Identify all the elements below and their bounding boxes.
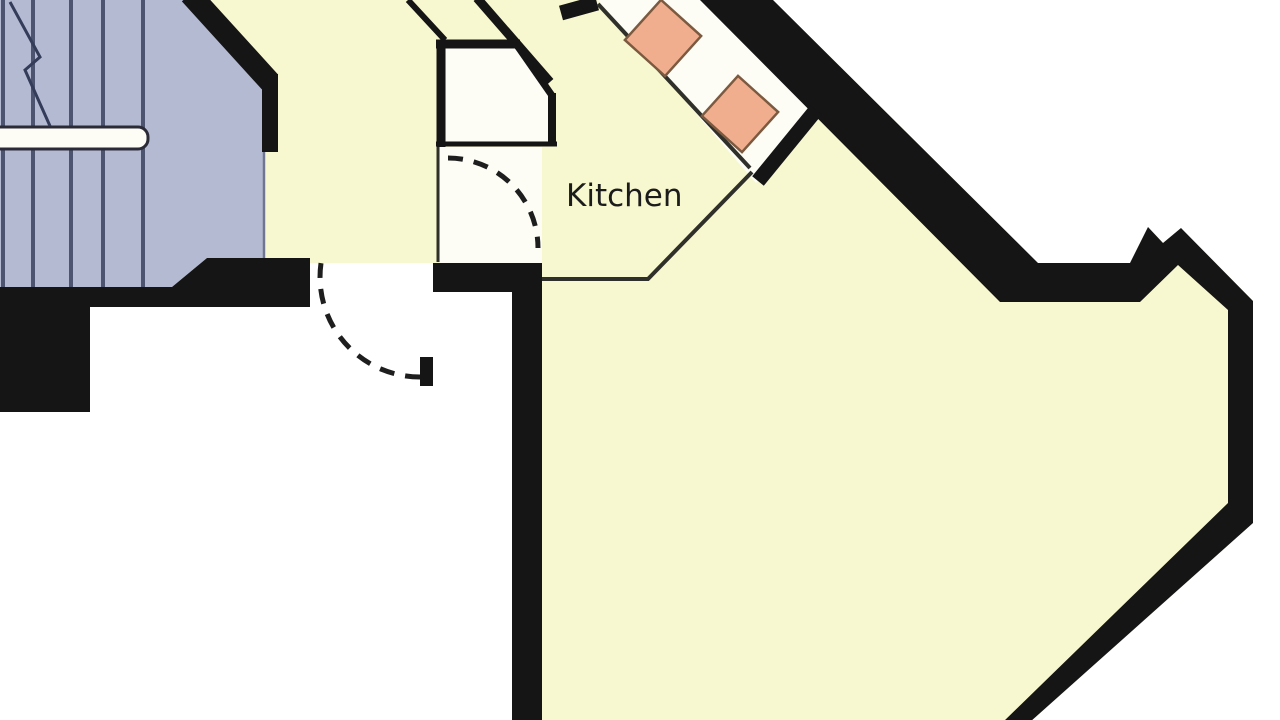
stair-handrail xyxy=(0,127,148,149)
door-jamb xyxy=(420,357,433,386)
room-label-kitchen: Kitchen xyxy=(566,178,683,214)
wall-hall-southwest xyxy=(0,287,90,412)
floorplan-page: Kitchen xyxy=(0,0,1280,720)
vestibule-floor xyxy=(440,147,542,263)
floorplan-drawing: Kitchen xyxy=(0,0,1280,720)
counter-end-north xyxy=(561,3,597,13)
